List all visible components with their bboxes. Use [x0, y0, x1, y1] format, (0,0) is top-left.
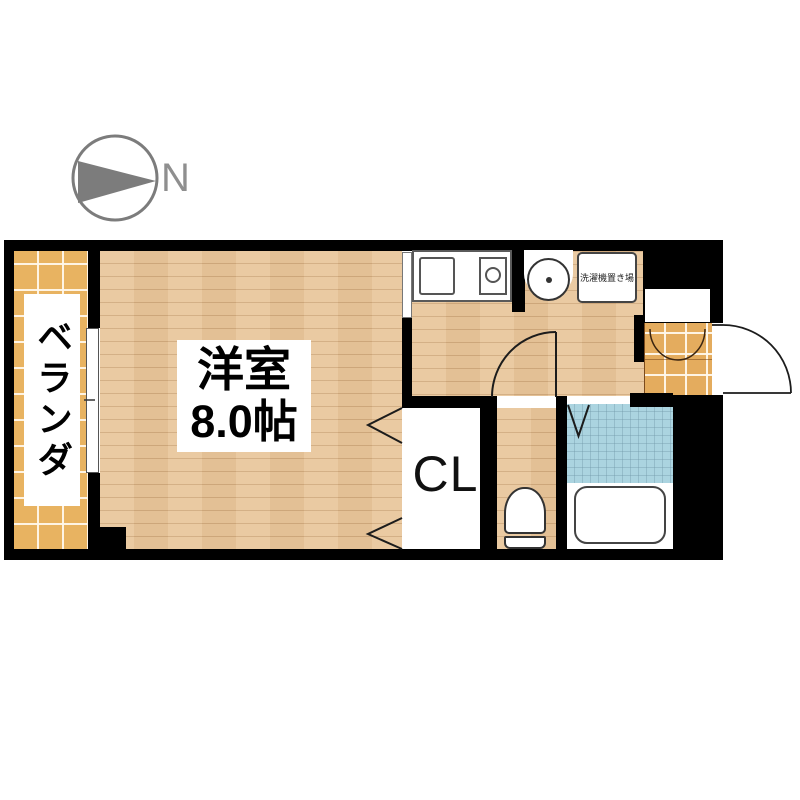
- balcony-label-box: ベランダ: [24, 294, 80, 506]
- wall-right-mass: [673, 395, 723, 560]
- kitchen-sink: [419, 257, 455, 295]
- wall-genkan-stub: [634, 315, 644, 362]
- entrance-door-frame: [712, 323, 723, 395]
- wall-left: [4, 240, 14, 560]
- main-room-label-box: 洋室 8.0帖: [177, 340, 311, 452]
- wall-hall-bottom-a: [402, 396, 488, 408]
- wall-toilet-bath: [556, 396, 567, 549]
- genkan-step-line: [644, 359, 712, 360]
- bathtub: [574, 486, 666, 544]
- wall-closet-toilet: [480, 396, 497, 549]
- main-room-size: 8.0帖: [190, 397, 298, 447]
- toilet-bowl: [504, 487, 546, 534]
- wall-corner-step: [88, 527, 126, 549]
- closet-label: CL: [411, 445, 480, 503]
- compass-north-arrow-icon: [73, 136, 157, 220]
- main-room-name: 洋室: [190, 344, 298, 397]
- bathroom-wet-floor: [567, 403, 673, 483]
- shoe-cabinet: [645, 289, 710, 322]
- stove-burner-icon: [485, 267, 501, 283]
- room-sliding-door: [402, 252, 412, 318]
- wall-bottom: [4, 549, 723, 560]
- toilet-tank: [504, 536, 546, 549]
- main-room-label: 洋室 8.0帖: [190, 344, 298, 447]
- wall-hall-bottom-b: [630, 393, 673, 407]
- wash-basin-drain: [546, 277, 552, 283]
- wall-balcony-divider-top: [88, 250, 100, 328]
- floor-plan: 洗濯機置き場 ベランダ 洋室 8.0帖 CL N: [0, 0, 800, 800]
- wall-room-hallway: [402, 318, 412, 408]
- balcony-window: [86, 328, 99, 473]
- compass-label: N: [161, 156, 190, 201]
- wall-top: [4, 240, 723, 251]
- bath-doorway: [567, 396, 630, 404]
- toilet-doorway: [488, 396, 556, 408]
- entrance-door-icon: [712, 325, 791, 393]
- balcony-label: ベランダ: [26, 318, 78, 482]
- laundry-space: 洗濯機置き場: [577, 252, 637, 303]
- laundry-space-label: 洗濯機置き場: [580, 271, 634, 284]
